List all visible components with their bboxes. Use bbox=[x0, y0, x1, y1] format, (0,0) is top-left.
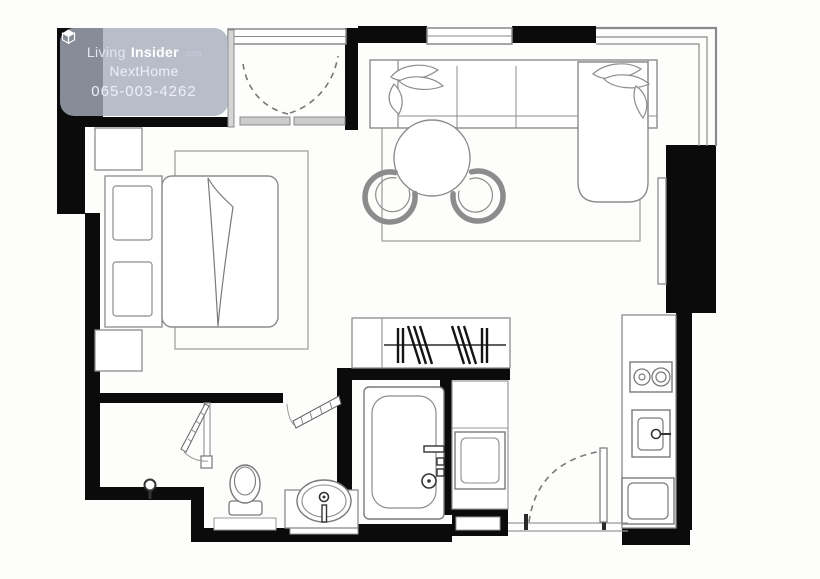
shelf-room bbox=[452, 381, 508, 509]
shelf-kick bbox=[456, 517, 500, 530]
balcony-door-arc-right bbox=[290, 56, 338, 113]
burner-right-inner bbox=[656, 372, 666, 382]
wall-top-b bbox=[512, 26, 596, 43]
wall-bedroom-top bbox=[85, 117, 228, 127]
wall-top-a bbox=[358, 26, 427, 43]
threshold-step bbox=[214, 518, 276, 530]
entry-door-arc bbox=[529, 451, 602, 522]
watermark-badge: LivingInsider.com NextHome 065-003-4262 bbox=[60, 28, 228, 116]
basin-handle bbox=[322, 505, 327, 522]
nightstand-bottom bbox=[95, 330, 142, 371]
bed bbox=[105, 176, 278, 327]
floor-drain-stem bbox=[149, 491, 152, 499]
tub-knob-2 bbox=[437, 469, 444, 476]
wall-tub-bottom bbox=[352, 524, 452, 542]
watermark-phone: 065-003-4262 bbox=[91, 83, 196, 100]
cube-icon bbox=[60, 28, 77, 45]
toilet bbox=[229, 465, 262, 515]
partition-block bbox=[201, 456, 212, 468]
balcony-doors bbox=[240, 56, 345, 125]
bathtub bbox=[364, 387, 444, 519]
watermark-agent-name: NextHome bbox=[109, 63, 178, 79]
shelf-unit-inner bbox=[461, 438, 499, 483]
balcony-door-leaf-right bbox=[294, 117, 345, 125]
entry bbox=[508, 448, 628, 531]
bathroom-door-leaf bbox=[293, 396, 341, 428]
wall-step-vertical bbox=[191, 487, 204, 542]
tub-control-dot bbox=[427, 479, 431, 483]
wall-pillar bbox=[666, 145, 716, 313]
sink-faucet bbox=[652, 430, 661, 439]
dining-table bbox=[394, 120, 470, 196]
bed-pillow-1 bbox=[113, 186, 152, 240]
wall-right-strip bbox=[676, 313, 692, 530]
entry-stop-left bbox=[524, 514, 528, 530]
toilet-bowl-inner bbox=[235, 467, 256, 495]
tv-panel bbox=[658, 178, 666, 284]
wall-wardrobe-bottom bbox=[337, 368, 510, 380]
balcony-left-jamb bbox=[228, 30, 234, 127]
brand-bold: Insider bbox=[131, 45, 179, 59]
refrigerator bbox=[622, 478, 674, 524]
wall-kitchen-bottom bbox=[622, 528, 690, 545]
wall-bottomleft-bar bbox=[85, 487, 191, 500]
storage-room bbox=[145, 403, 213, 499]
bed-pillow-2 bbox=[113, 262, 152, 316]
watermark-brand-row: LivingInsider.com bbox=[87, 45, 201, 59]
balcony-door-leaf-left bbox=[240, 117, 290, 125]
wardrobe bbox=[352, 318, 510, 368]
wall-balcony-right bbox=[345, 28, 358, 130]
kitchen-sink bbox=[632, 410, 671, 457]
basin-faucet-dot bbox=[323, 496, 326, 499]
bathroom-door bbox=[287, 396, 341, 428]
balcony-door-arc-left bbox=[243, 64, 288, 114]
brand-light: Living bbox=[87, 45, 126, 59]
burner-left-dot bbox=[639, 374, 645, 380]
tub-spout bbox=[424, 446, 444, 452]
nightstand-top bbox=[95, 128, 142, 170]
tub-knob-1 bbox=[437, 458, 444, 465]
brand-suffix: .com bbox=[184, 50, 201, 58]
stove bbox=[630, 362, 672, 392]
entry-door-leaf bbox=[600, 448, 607, 522]
wall-bedroom-bottom bbox=[95, 393, 283, 403]
floor-drain bbox=[145, 480, 156, 491]
floorplan-image: LivingInsider.com NextHome 065-003-4262 bbox=[0, 0, 820, 579]
